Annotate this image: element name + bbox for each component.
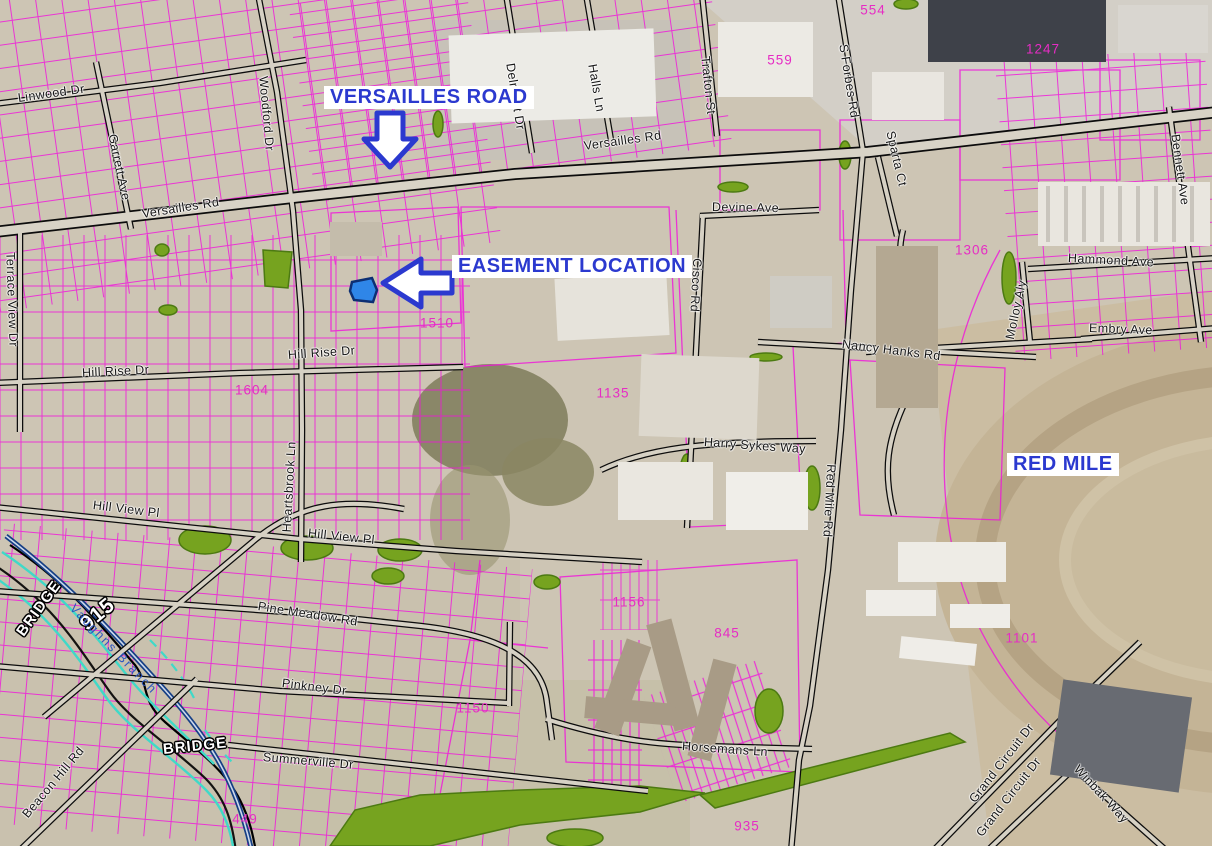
easement-parcel [350,278,377,302]
map-root: Linwood DrGarrett AveWoodford DrVersaill… [0,0,1212,846]
map-canvas [0,0,1212,846]
